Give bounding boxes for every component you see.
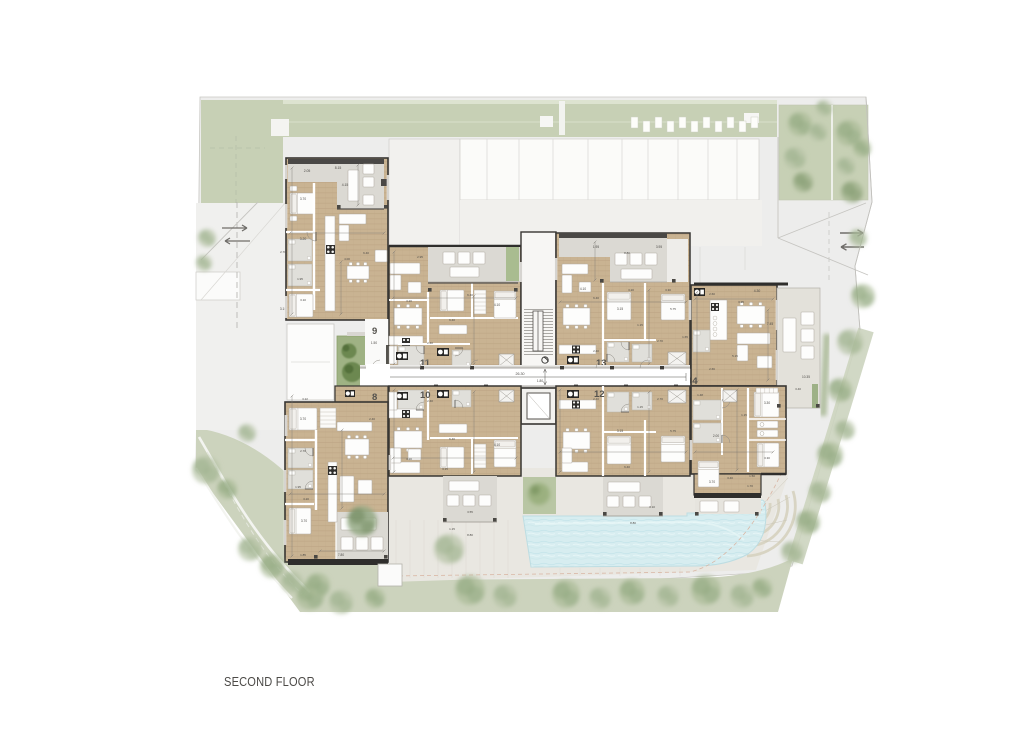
- svg-text:3.15: 3.15: [617, 307, 623, 311]
- svg-text:1.95: 1.95: [297, 277, 303, 281]
- svg-text:6.40: 6.40: [467, 293, 473, 297]
- svg-text:2.70: 2.70: [300, 449, 306, 453]
- svg-text:1.15: 1.15: [637, 323, 643, 327]
- svg-text:9: 9: [372, 326, 377, 337]
- svg-text:4.10: 4.10: [494, 303, 500, 307]
- svg-text:10: 10: [420, 390, 431, 401]
- svg-text:6.40: 6.40: [449, 318, 455, 322]
- svg-text:10.35: 10.35: [802, 375, 810, 379]
- svg-text:1.95: 1.95: [295, 485, 301, 489]
- svg-text:1.15: 1.15: [637, 405, 643, 409]
- svg-text:1.15: 1.15: [449, 527, 455, 531]
- svg-text:8.15: 8.15: [335, 166, 342, 170]
- svg-text:3.35: 3.35: [738, 300, 744, 304]
- svg-text:3.22: 3.22: [302, 397, 308, 401]
- svg-text:5.75: 5.75: [670, 429, 676, 433]
- svg-text:3.30: 3.30: [764, 401, 770, 405]
- svg-text:3.10: 3.10: [649, 505, 655, 509]
- svg-text:2.70: 2.70: [657, 339, 663, 343]
- svg-text:4.15: 4.15: [342, 183, 349, 187]
- svg-text:6.40: 6.40: [449, 437, 455, 441]
- svg-text:5.75: 5.75: [670, 307, 676, 311]
- svg-text:1.65: 1.65: [682, 335, 688, 339]
- svg-text:6.40: 6.40: [593, 296, 599, 300]
- svg-text:3.30: 3.30: [764, 456, 770, 460]
- svg-text:3.95: 3.95: [656, 245, 662, 249]
- svg-text:3.30: 3.30: [665, 288, 671, 292]
- svg-text:1.50: 1.50: [371, 341, 377, 345]
- svg-text:12: 12: [594, 389, 605, 400]
- svg-text:4.00: 4.00: [344, 257, 350, 261]
- svg-text:1.50: 1.50: [749, 474, 755, 478]
- svg-text:6.40: 6.40: [624, 465, 630, 469]
- svg-text:1.70: 1.70: [747, 484, 753, 488]
- svg-text:3.20: 3.20: [406, 457, 412, 461]
- svg-text:7.45: 7.45: [767, 322, 773, 326]
- svg-text:2.40: 2.40: [593, 349, 599, 353]
- svg-text:2.00: 2.00: [713, 434, 719, 438]
- svg-text:2.66: 2.66: [709, 367, 715, 371]
- svg-text:8.80: 8.80: [630, 521, 636, 525]
- svg-text:3.20: 3.20: [406, 299, 412, 303]
- svg-text:6.40: 6.40: [363, 251, 369, 255]
- svg-text:1.80: 1.80: [537, 379, 543, 383]
- svg-text:8.80: 8.80: [624, 251, 630, 255]
- svg-text:3.15: 3.15: [442, 467, 448, 471]
- svg-text:4.10: 4.10: [580, 287, 586, 291]
- svg-text:1.95: 1.95: [593, 245, 599, 249]
- svg-text:7.80: 7.80: [338, 553, 344, 557]
- svg-text:8: 8: [372, 392, 377, 403]
- svg-text:2.40: 2.40: [369, 417, 375, 421]
- svg-text:3.70: 3.70: [300, 197, 306, 201]
- svg-text:2.40: 2.40: [427, 341, 433, 345]
- svg-text:2.05: 2.05: [304, 169, 311, 173]
- svg-text:8.80: 8.80: [467, 533, 473, 537]
- svg-text:2.95: 2.95: [417, 255, 423, 259]
- svg-text:3.40: 3.40: [795, 387, 801, 391]
- svg-text:1.85: 1.85: [300, 553, 306, 557]
- svg-text:3.10: 3.10: [300, 298, 306, 302]
- svg-text:3.40: 3.40: [727, 476, 733, 480]
- svg-text:3.70: 3.70: [709, 480, 715, 484]
- svg-text:3.55: 3.55: [467, 510, 473, 514]
- svg-text:3.20: 3.20: [628, 288, 634, 292]
- svg-text:3.70: 3.70: [300, 417, 306, 421]
- svg-text:1.48: 1.48: [697, 393, 703, 397]
- svg-text:3.70: 3.70: [301, 519, 307, 523]
- svg-text:5.15: 5.15: [732, 354, 738, 358]
- svg-text:3.20: 3.20: [303, 497, 309, 501]
- svg-text:SECOND FLOOR: SECOND FLOOR: [224, 674, 315, 689]
- svg-text:2.60: 2.60: [709, 292, 715, 296]
- svg-text:3.20: 3.20: [300, 237, 307, 241]
- svg-text:1.15: 1.15: [741, 413, 747, 417]
- svg-text:2.70: 2.70: [280, 250, 286, 254]
- svg-text:2.70: 2.70: [657, 397, 663, 401]
- svg-text:3.15: 3.15: [617, 429, 623, 433]
- svg-text:26.30: 26.30: [516, 372, 525, 376]
- svg-text:4.30: 4.30: [754, 289, 761, 293]
- svg-text:4.10: 4.10: [494, 443, 500, 447]
